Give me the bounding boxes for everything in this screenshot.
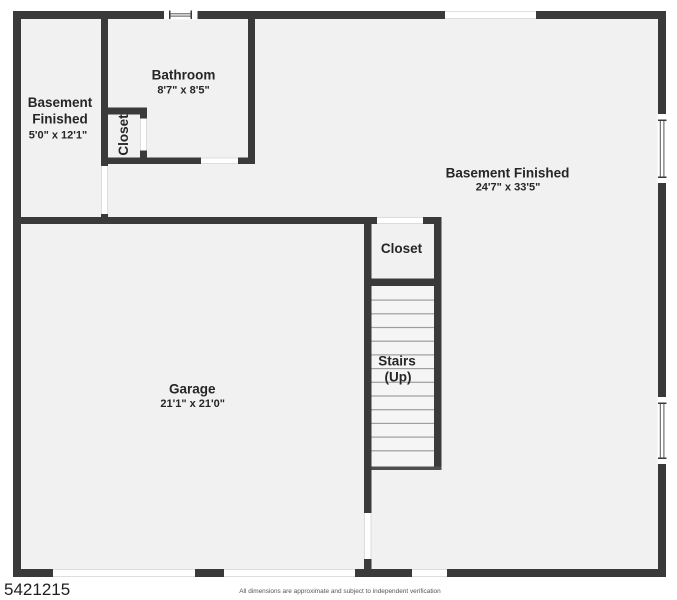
svg-text:Closet: Closet [116, 114, 131, 156]
svg-text:Finished: Finished [32, 112, 88, 127]
svg-text:Bathroom: Bathroom [152, 68, 216, 83]
svg-text:5'0" x 12'1": 5'0" x 12'1" [29, 130, 87, 142]
svg-text:All dimensions are approximate: All dimensions are approximate and subje… [239, 588, 441, 595]
svg-text:24'7" x 33'5": 24'7" x 33'5" [476, 182, 541, 194]
svg-text:Garage: Garage [169, 382, 216, 397]
svg-text:5421215: 5421215 [4, 580, 70, 599]
svg-text:21'1" x 21'0": 21'1" x 21'0" [160, 398, 225, 410]
svg-text:Closet: Closet [381, 241, 423, 256]
svg-text:Basement: Basement [28, 95, 93, 110]
svg-text:(Up): (Up) [385, 370, 412, 385]
svg-text:8'7" x 8'5": 8'7" x 8'5" [157, 85, 209, 97]
svg-text:Basement Finished: Basement Finished [446, 166, 570, 181]
svg-text:Stairs: Stairs [378, 354, 416, 369]
